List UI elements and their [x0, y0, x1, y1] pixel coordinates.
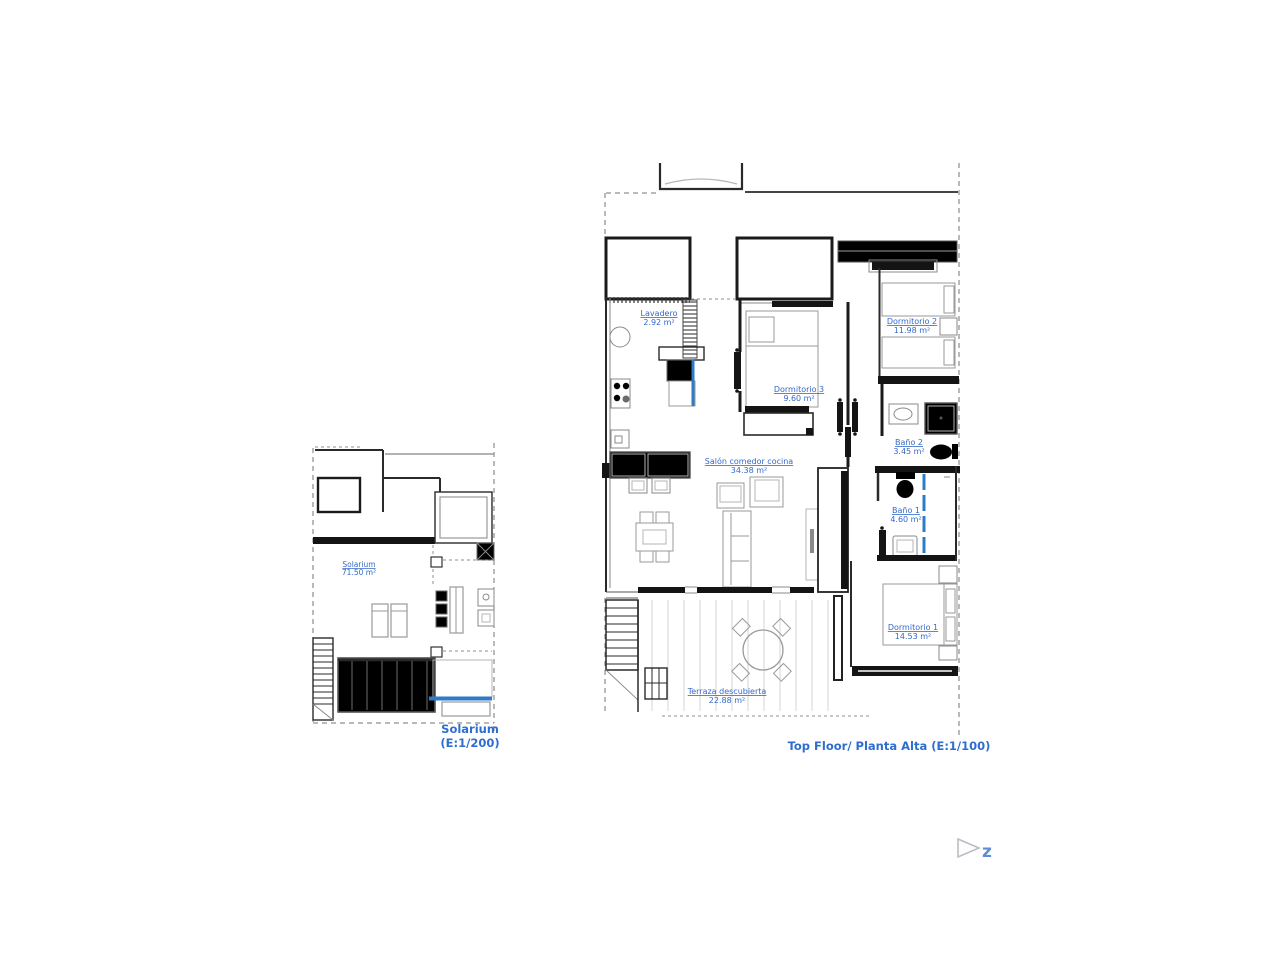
logo-letter: z: [982, 842, 992, 862]
room-label-solarium: Solarium 71.50 m²: [342, 560, 376, 577]
terrace-wall: [834, 596, 842, 680]
room-area: 9.60 m²: [783, 394, 814, 403]
room-area: 34.38 m²: [731, 466, 767, 475]
nightstand: [939, 646, 957, 660]
sofa: [723, 511, 751, 587]
nightstand: [940, 318, 957, 335]
elevator-shaft: [435, 492, 494, 560]
dormitorio3: [734, 300, 848, 467]
room-label-dormitorio1: Dormitorio 1 14.53 m²: [888, 623, 938, 641]
room-area: 3.45 m²: [893, 447, 924, 456]
bar-counter: [431, 545, 494, 657]
living-furniture: [717, 466, 849, 592]
room-area: 2.92 m²: [643, 318, 674, 327]
dormitorio1: [839, 561, 958, 676]
solarium-plan: Solarium 71.50 m² Solarium (E:1/200): [313, 443, 500, 750]
pergola-slats: [338, 658, 435, 712]
room-label-lavadero: Lavadero 2.92 m²: [640, 309, 677, 327]
utility-rooms: [606, 238, 832, 303]
floorplan-page: Solarium 71.50 m² Solarium (E:1/200): [0, 0, 1280, 960]
top-floor-plan: Lavadero 2.92 m² Dormitorio 3 9.60 m² Do…: [602, 163, 990, 753]
floor-plan-drawing: Solarium 71.50 m² Solarium (E:1/200): [0, 0, 1280, 960]
sink2-icon: [611, 430, 629, 448]
solarium-caption: Solarium (E:1/200): [440, 722, 499, 750]
counter: [610, 452, 690, 478]
room-label-salon: Salón comedor cocina 34.38 m²: [705, 456, 794, 475]
sun-loungers: [372, 604, 407, 637]
room-area: 71.50 m²: [342, 568, 376, 577]
kitchen: [602, 298, 697, 592]
toilet-icon: [896, 472, 915, 479]
room-name: Lavadero: [640, 309, 677, 318]
upper-walls: [313, 447, 494, 544]
wardrobe: [838, 241, 957, 272]
room-name: Baño 1: [892, 506, 920, 515]
top-floor-caption: Top Floor/ Planta Alta (E:1/100): [788, 739, 991, 753]
room-label-bano2: Baño 2 3.45 m²: [893, 438, 924, 456]
logo: z: [958, 839, 992, 862]
room-name: Dormitorio 2: [887, 317, 937, 326]
room-name: Dormitorio 1: [888, 623, 938, 632]
room-area: 4.60 m²: [890, 515, 921, 524]
toilet-icon: [930, 445, 952, 460]
dining-table: [636, 512, 673, 562]
room-label-dormitorio2: Dormitorio 2 11.98 m²: [887, 317, 937, 335]
washbasin-icon: [889, 404, 918, 424]
room-name: Salón comedor cocina: [705, 456, 794, 466]
room-name: Terraza descubierta: [687, 687, 767, 696]
room-label-bano1: Baño 1 4.60 m²: [890, 506, 921, 524]
room-name: Dormitorio 3: [774, 385, 824, 394]
caption-line2: (E:1/200): [440, 736, 499, 750]
room-area: 14.53 m²: [895, 632, 931, 641]
terrace-table: [732, 619, 791, 682]
room-name: Baño 2: [895, 438, 923, 447]
kitchen-sink-icon: [610, 327, 630, 347]
side-stairs: [313, 638, 333, 720]
caption-line1: Solarium: [441, 722, 499, 736]
room-area: 22.88 m²: [709, 696, 745, 705]
room-area: 11.98 m²: [894, 326, 930, 335]
stair-hatch: [683, 300, 697, 358]
logo-triangle-icon: [958, 839, 979, 857]
nightstand: [939, 566, 957, 583]
south-wall: [606, 587, 814, 598]
terrace-stairs: [606, 600, 668, 712]
room-label-dormitorio3: Dormitorio 3 9.60 m²: [774, 385, 824, 403]
room-label-terraza: Terraza descubierta 22.88 m²: [687, 687, 767, 705]
pool-deck: [429, 660, 492, 716]
